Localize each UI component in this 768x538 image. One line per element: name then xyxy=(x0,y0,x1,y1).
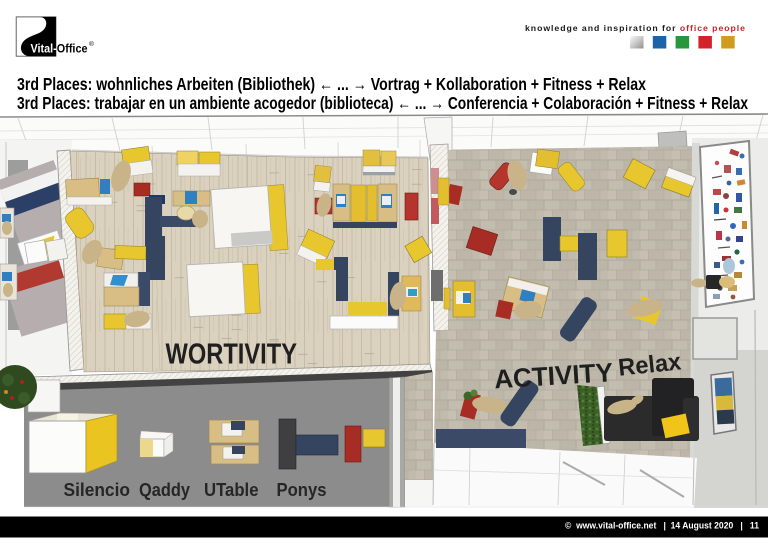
svg-text:© www.vital-office.net | 1: © www.vital-office.net | 14 August 2020 … xyxy=(565,521,760,532)
svg-text:Silencio: Silencio xyxy=(64,480,131,500)
svg-text:UTable: UTable xyxy=(204,480,259,500)
svg-text:Vital-Office: Vital-Office xyxy=(31,44,88,56)
svg-text:3rd Places: trabajar en un amb: 3rd Places: trabajar en un ambiente acog… xyxy=(17,93,748,113)
svg-text:Qaddy: Qaddy xyxy=(139,480,190,500)
svg-text:®: ® xyxy=(89,40,94,48)
svg-text:3rd Places: wohnliches Arbeite: 3rd Places: wohnliches Arbeiten (Bibliot… xyxy=(17,74,646,94)
svg-text:WORTIVITY: WORTIVITY xyxy=(166,339,298,371)
svg-text:knowledge and inspiration for: knowledge and inspiration for office peo… xyxy=(525,23,745,33)
svg-text:Ponys: Ponys xyxy=(277,480,327,500)
